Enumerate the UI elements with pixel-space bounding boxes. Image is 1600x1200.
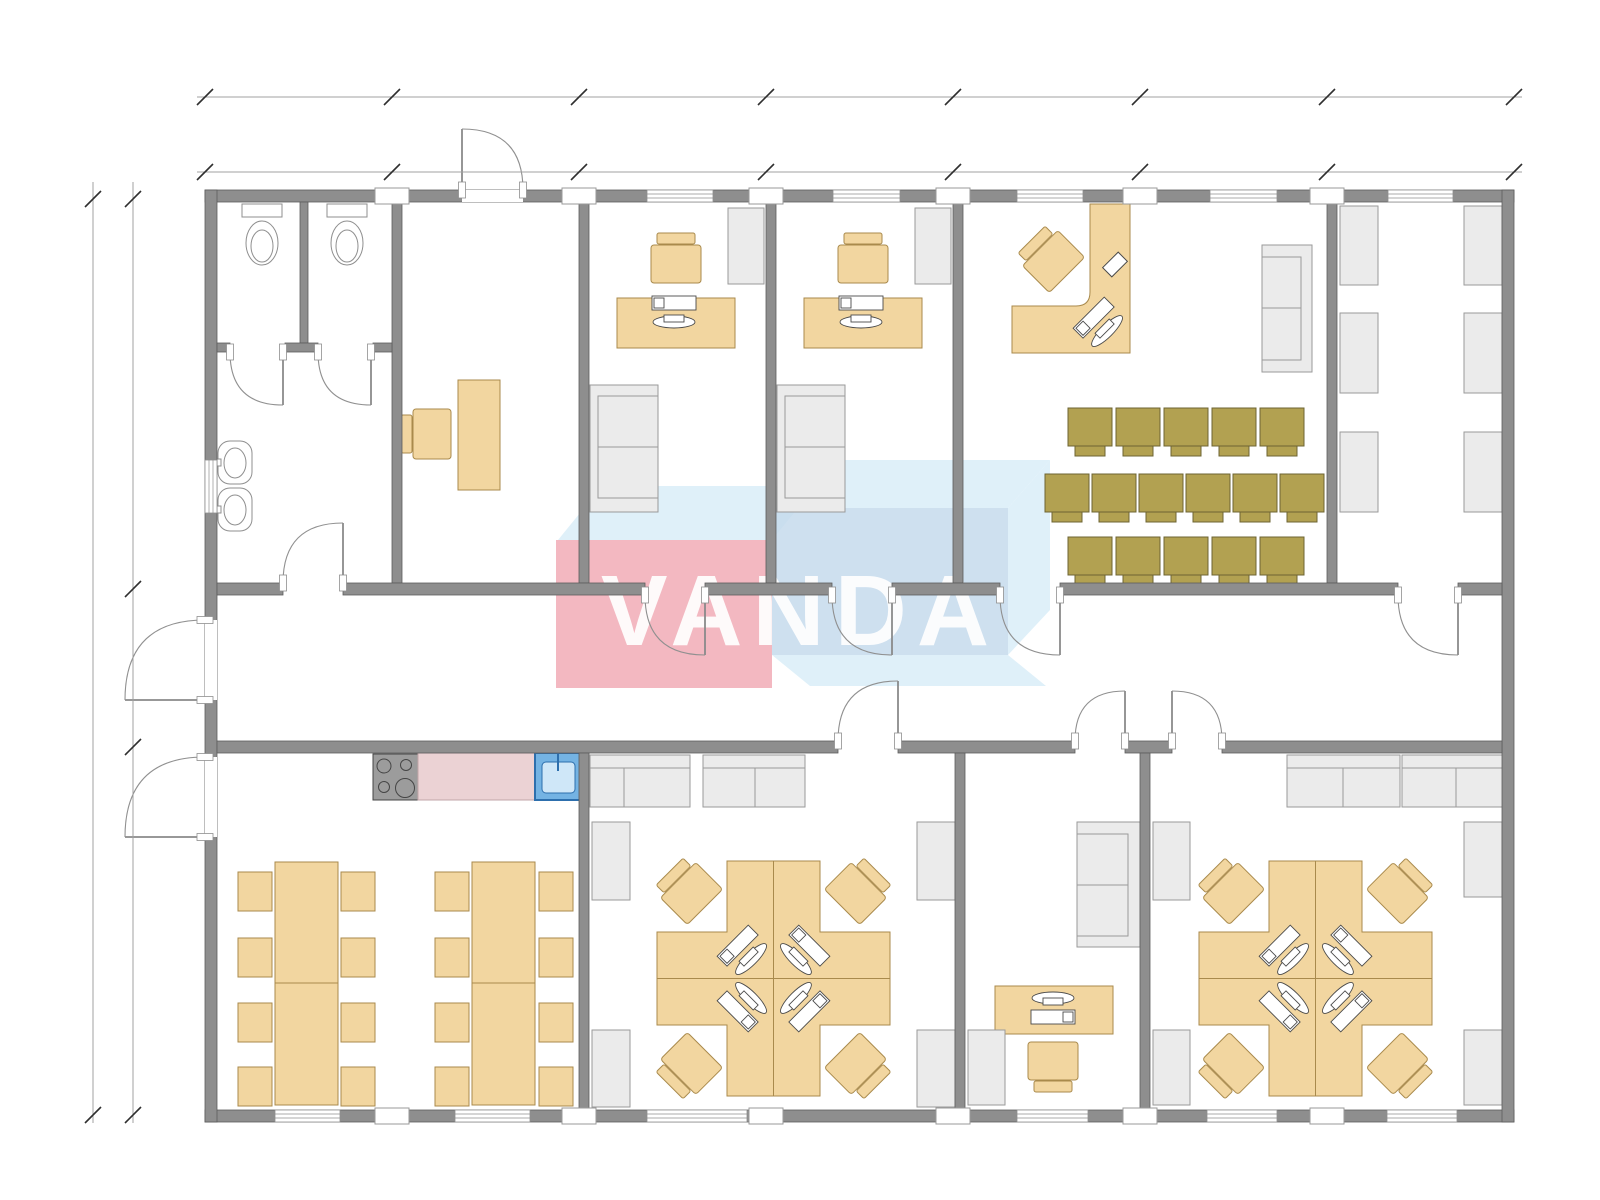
chair-row bbox=[1233, 474, 1277, 512]
wall-interior bbox=[766, 202, 776, 583]
door-jamb bbox=[197, 617, 213, 624]
dining-table bbox=[472, 983, 535, 1105]
office-chair-seat bbox=[1028, 1042, 1078, 1080]
door-jamb bbox=[1057, 587, 1064, 603]
door-exterior-swing bbox=[125, 757, 205, 837]
chair-row bbox=[1260, 537, 1304, 575]
chair-row bbox=[1260, 408, 1304, 446]
dim-label: 2 400 bbox=[641, 57, 704, 83]
cabinet bbox=[915, 208, 951, 284]
locker bbox=[1464, 313, 1502, 393]
window bbox=[1017, 1110, 1088, 1122]
cabinet bbox=[1153, 822, 1190, 900]
chair-row bbox=[1139, 474, 1183, 512]
chair-row bbox=[1068, 408, 1112, 446]
door-jamb bbox=[1072, 733, 1079, 749]
chair-row bbox=[1045, 474, 1089, 512]
cabinet bbox=[592, 822, 630, 900]
wall-interior bbox=[579, 202, 589, 583]
door-jamb bbox=[340, 575, 347, 591]
door-jamb bbox=[315, 344, 322, 360]
dining-table bbox=[275, 983, 338, 1105]
wall-interior bbox=[955, 753, 965, 1110]
wall-corridor bbox=[343, 583, 645, 595]
chair-row-front bbox=[1287, 512, 1317, 522]
wall-corridor bbox=[1222, 741, 1502, 753]
module-joint bbox=[562, 1108, 596, 1124]
cabinet bbox=[968, 1030, 1005, 1105]
office-chair-back bbox=[1034, 1081, 1072, 1092]
dining-chair bbox=[341, 872, 375, 911]
door-jamb bbox=[997, 587, 1004, 603]
dining-chair bbox=[435, 938, 469, 977]
door-jamb bbox=[1395, 587, 1402, 603]
door-jamb bbox=[197, 697, 213, 704]
cabinet bbox=[592, 1030, 630, 1107]
chair-row-front bbox=[1099, 512, 1129, 522]
module-joint bbox=[936, 1108, 970, 1124]
chair-row bbox=[1186, 474, 1230, 512]
dim-label: 2 400 bbox=[1202, 132, 1265, 158]
logo-text: VANDA bbox=[601, 555, 999, 667]
wall-corridor bbox=[705, 583, 832, 595]
wall-corridor bbox=[1458, 583, 1502, 595]
dining-chair bbox=[238, 1003, 272, 1042]
dining-chair bbox=[539, 872, 573, 911]
chair-row-front bbox=[1193, 512, 1223, 522]
chair-row bbox=[1212, 537, 1256, 575]
door-exterior-swing bbox=[462, 129, 523, 190]
dim-label: 2 400 bbox=[1015, 132, 1078, 158]
chair-row bbox=[1116, 408, 1160, 446]
cabinet bbox=[1464, 822, 1502, 897]
module-joint bbox=[749, 188, 783, 204]
chair-row-front bbox=[1267, 446, 1297, 456]
counter bbox=[703, 755, 805, 807]
door-exterior-swing bbox=[125, 620, 205, 700]
computer bbox=[664, 315, 684, 322]
chair-row-front bbox=[1171, 446, 1201, 456]
counter bbox=[1402, 755, 1512, 807]
wall-corridor bbox=[892, 583, 1000, 595]
dining-chair bbox=[238, 872, 272, 911]
module-joint bbox=[1310, 188, 1344, 204]
module-joint bbox=[749, 1108, 783, 1124]
door-gap bbox=[462, 190, 523, 202]
dim-label: 2 400 bbox=[1015, 57, 1078, 83]
dining-chair bbox=[539, 1067, 573, 1106]
chair-row bbox=[1280, 474, 1324, 512]
chair-row-front bbox=[1052, 512, 1082, 522]
door-jamb bbox=[1169, 733, 1176, 749]
locker bbox=[1340, 313, 1378, 393]
dim-label: 2 400 bbox=[1389, 57, 1452, 83]
chair-row bbox=[1164, 537, 1208, 575]
dining-chair bbox=[341, 1067, 375, 1106]
wall-stall bbox=[285, 343, 318, 352]
window bbox=[1210, 190, 1277, 202]
chair-row bbox=[1068, 537, 1112, 575]
floor-plan-page: VANDA2 4002 4002 4002 4002 4002 4002 400… bbox=[0, 0, 1600, 1200]
locker bbox=[1340, 432, 1378, 512]
module-joint bbox=[1123, 1108, 1157, 1124]
locker bbox=[1340, 206, 1378, 285]
desk bbox=[458, 380, 500, 490]
door-jamb bbox=[889, 587, 896, 603]
dining-chair bbox=[435, 1067, 469, 1106]
wall-interior bbox=[392, 202, 402, 583]
window bbox=[833, 190, 900, 202]
dim-label: 12 000 bbox=[65, 619, 91, 695]
chair-row-front bbox=[1240, 512, 1270, 522]
module-joint bbox=[375, 1108, 409, 1124]
wall-corridor bbox=[217, 583, 283, 595]
chair-row-front bbox=[1075, 446, 1105, 456]
door-jamb bbox=[642, 587, 649, 603]
door-jamb bbox=[459, 182, 466, 198]
chair-row-front bbox=[1123, 446, 1153, 456]
door-jamb bbox=[280, 575, 287, 591]
module-joint bbox=[1123, 188, 1157, 204]
wall-interior bbox=[1140, 753, 1150, 1110]
dim-label: 2 400 bbox=[454, 132, 517, 158]
dim-label: 2 400 bbox=[267, 132, 330, 158]
door-jamb bbox=[520, 182, 527, 198]
floor-plan-canvas: VANDA2 4002 4002 4002 4002 4002 4002 400… bbox=[0, 0, 1600, 1200]
office-chair-back bbox=[657, 233, 695, 244]
dim-label: 5 000 bbox=[105, 900, 131, 963]
dining-chair bbox=[341, 938, 375, 977]
wall-stall bbox=[373, 343, 392, 352]
office-chair-seat bbox=[413, 409, 451, 459]
wall-exterior-right bbox=[1502, 190, 1514, 1122]
chair-row-front bbox=[1146, 512, 1176, 522]
door-jamb bbox=[1455, 587, 1462, 603]
dining-table bbox=[275, 862, 338, 983]
locker bbox=[1464, 432, 1502, 512]
wall-corridor bbox=[898, 741, 1075, 753]
office-chair-back bbox=[844, 233, 882, 244]
window bbox=[1207, 1110, 1277, 1122]
window bbox=[1017, 190, 1083, 202]
door-jamb bbox=[895, 733, 902, 749]
locker bbox=[1464, 206, 1502, 285]
window bbox=[647, 190, 713, 202]
dim-label: 2 400 bbox=[454, 57, 517, 83]
door-jamb bbox=[702, 587, 709, 603]
cabinet bbox=[917, 1030, 955, 1107]
wall-interior bbox=[579, 753, 589, 1110]
wall-stall bbox=[300, 202, 308, 343]
door-gap bbox=[205, 620, 217, 700]
window bbox=[647, 1110, 747, 1122]
door-jamb bbox=[197, 834, 213, 841]
dim-label: 2 000 bbox=[105, 637, 131, 700]
door-jamb bbox=[835, 733, 842, 749]
cabinet bbox=[728, 208, 764, 284]
dining-chair bbox=[435, 1003, 469, 1042]
dining-chair bbox=[539, 938, 573, 977]
dining-table bbox=[472, 862, 535, 983]
wall-interior bbox=[1327, 202, 1337, 583]
door-jamb bbox=[1122, 733, 1129, 749]
door-jamb bbox=[197, 754, 213, 761]
counter bbox=[590, 755, 690, 807]
dining-chair bbox=[435, 872, 469, 911]
chair-row bbox=[1212, 408, 1256, 446]
dining-chair bbox=[238, 1067, 272, 1106]
dim-label: 2 400 bbox=[1202, 57, 1265, 83]
dim-label: 2 400 bbox=[828, 57, 891, 83]
chair-row-front bbox=[1219, 446, 1249, 456]
office-chair-seat bbox=[651, 245, 701, 283]
computer bbox=[851, 315, 871, 322]
cabinet bbox=[1464, 1030, 1502, 1105]
wall-corridor bbox=[217, 741, 838, 753]
dim-label: 5 000 bbox=[105, 363, 131, 426]
module-joint bbox=[562, 188, 596, 204]
chair-row bbox=[1092, 474, 1136, 512]
door-jamb bbox=[280, 344, 287, 360]
door-gap bbox=[205, 757, 217, 837]
dim-label: 2 400 bbox=[267, 57, 330, 83]
module-joint bbox=[1310, 1108, 1344, 1124]
door-jamb bbox=[368, 344, 375, 360]
dining-chair bbox=[341, 1003, 375, 1042]
toilet-cistern bbox=[242, 204, 282, 217]
module-joint bbox=[936, 188, 970, 204]
window bbox=[275, 1110, 340, 1122]
toilet-cistern bbox=[327, 204, 367, 217]
dining-chair bbox=[539, 1003, 573, 1042]
door-jamb bbox=[829, 587, 836, 603]
wall-corridor bbox=[1060, 583, 1398, 595]
window bbox=[205, 460, 217, 513]
window bbox=[1387, 1110, 1457, 1122]
dim-label: 2 400 bbox=[1389, 132, 1452, 158]
kitchen-counter bbox=[418, 753, 535, 800]
cabinet bbox=[1153, 1030, 1190, 1105]
door-jamb bbox=[1219, 733, 1226, 749]
chair-row bbox=[1116, 537, 1160, 575]
cabinet bbox=[917, 822, 955, 900]
office-chair-back bbox=[401, 415, 412, 453]
dining-chair bbox=[238, 938, 272, 977]
wall-interior bbox=[953, 202, 963, 583]
window bbox=[1388, 190, 1453, 202]
chair-row bbox=[1164, 408, 1208, 446]
module-joint bbox=[375, 188, 409, 204]
window bbox=[455, 1110, 530, 1122]
dim-label: 2 400 bbox=[641, 132, 704, 158]
office-chair-seat bbox=[838, 245, 888, 283]
dim-label: 2 400 bbox=[828, 132, 891, 158]
computer bbox=[1043, 998, 1063, 1005]
door-jamb bbox=[227, 344, 234, 360]
wall-corridor bbox=[1125, 741, 1172, 753]
